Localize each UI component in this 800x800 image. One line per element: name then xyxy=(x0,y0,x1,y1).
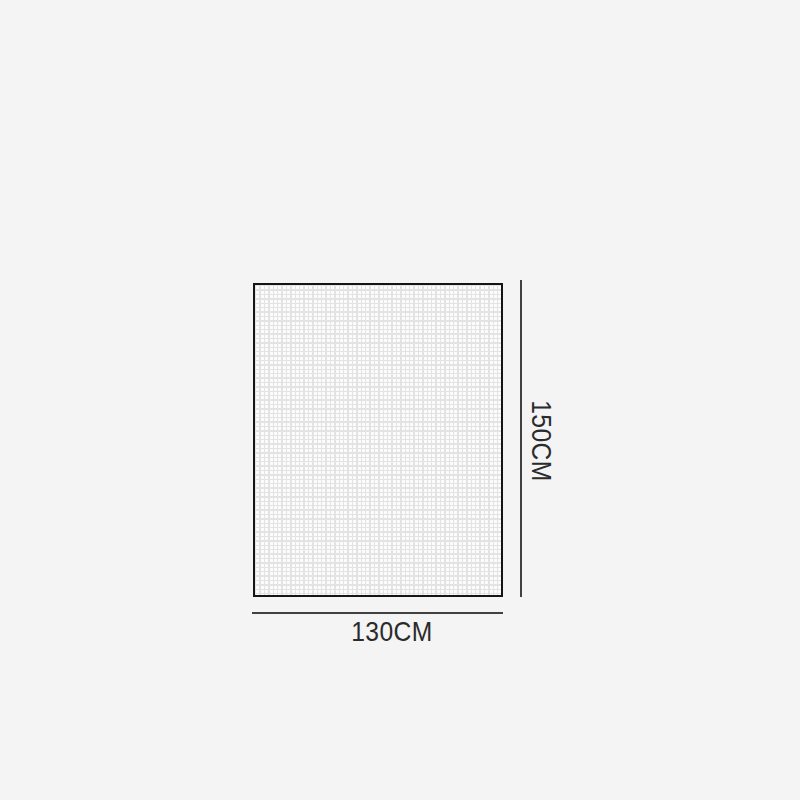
width-dimension-line xyxy=(252,612,503,614)
height-dimension-line xyxy=(520,280,522,597)
dimension-diagram: 150CM 130CM xyxy=(0,0,800,800)
mesh-fabric-swatch xyxy=(253,283,503,597)
height-dimension-label: 150CM xyxy=(527,400,555,482)
width-dimension-label: 130CM xyxy=(351,618,433,646)
